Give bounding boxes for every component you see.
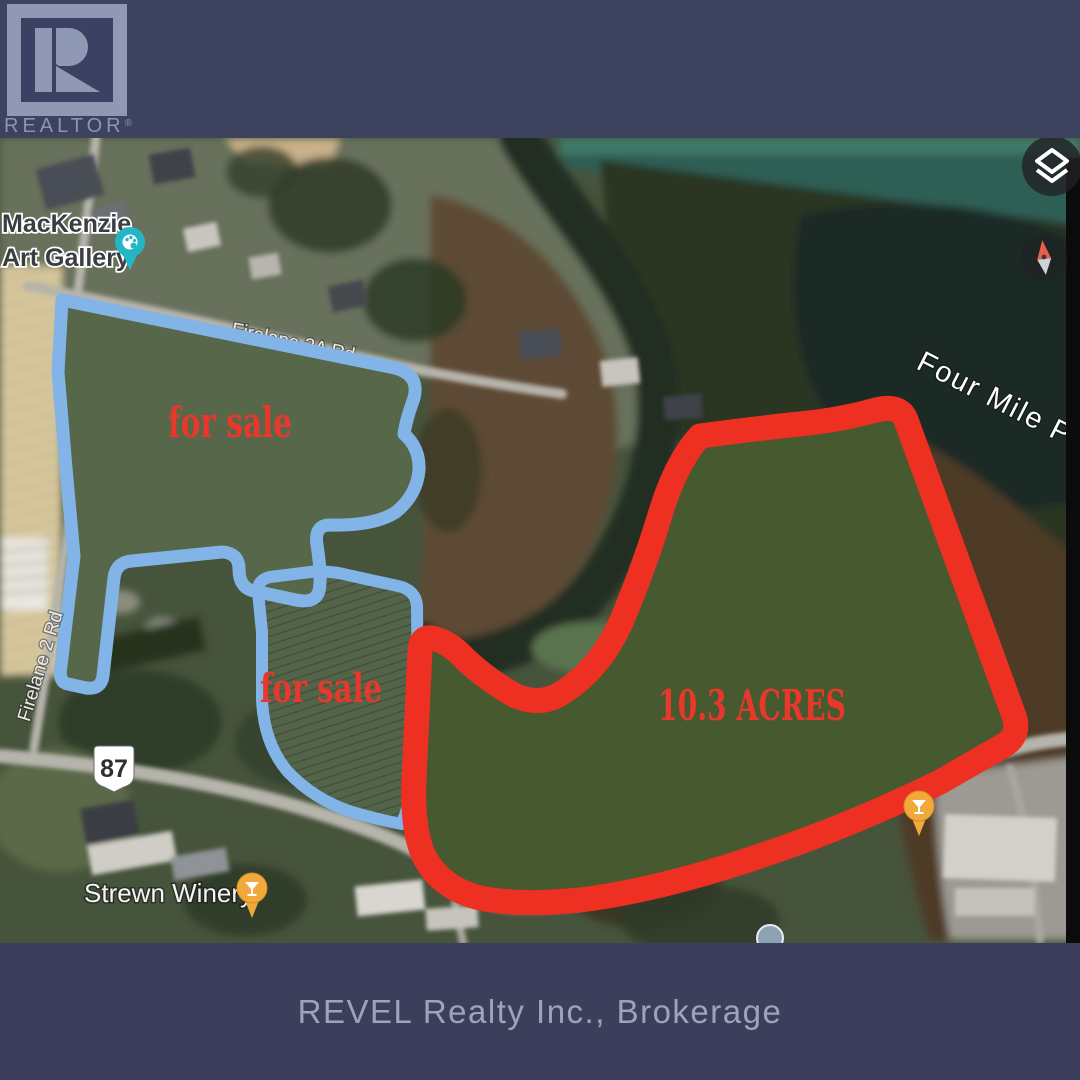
- route-87-badge: 87: [94, 746, 134, 792]
- satellite-map: Firelane 2A Rd Ironwo House MacKenzie Ar…: [0, 138, 1080, 943]
- compass-button[interactable]: [1021, 234, 1067, 280]
- right-black-strip: [1066, 158, 1080, 943]
- poi-label-gallery-line1: MacKenzie: [2, 210, 131, 238]
- listing-image: REALTOR®: [0, 0, 1080, 1080]
- realtor-text: REALTOR: [4, 115, 125, 137]
- top-bar: REALTOR®: [0, 0, 1080, 138]
- poi-label-gallery-line2: Art Gallery: [2, 244, 130, 272]
- brokerage-name: REVEL Realty Inc., Brokerage: [0, 993, 1080, 1031]
- annotation-for-sale-2: for sale: [260, 665, 382, 712]
- registered-mark: ®: [125, 118, 132, 129]
- route-87-number: 87: [100, 755, 128, 783]
- annotation-acreage: 10.3 ACRES: [658, 681, 846, 730]
- poi-dot[interactable]: [757, 925, 783, 943]
- annotation-for-sale-1: for sale: [168, 398, 292, 447]
- map-canvas: Firelane 2A Rd Ironwo House MacKenzie Ar…: [0, 138, 1080, 943]
- realtor-wordmark: REALTOR®: [4, 115, 130, 138]
- poi-label-strewn: Strewn Winery: [84, 878, 253, 908]
- footer-bar: REVEL Realty Inc., Brokerage: [0, 943, 1080, 1080]
